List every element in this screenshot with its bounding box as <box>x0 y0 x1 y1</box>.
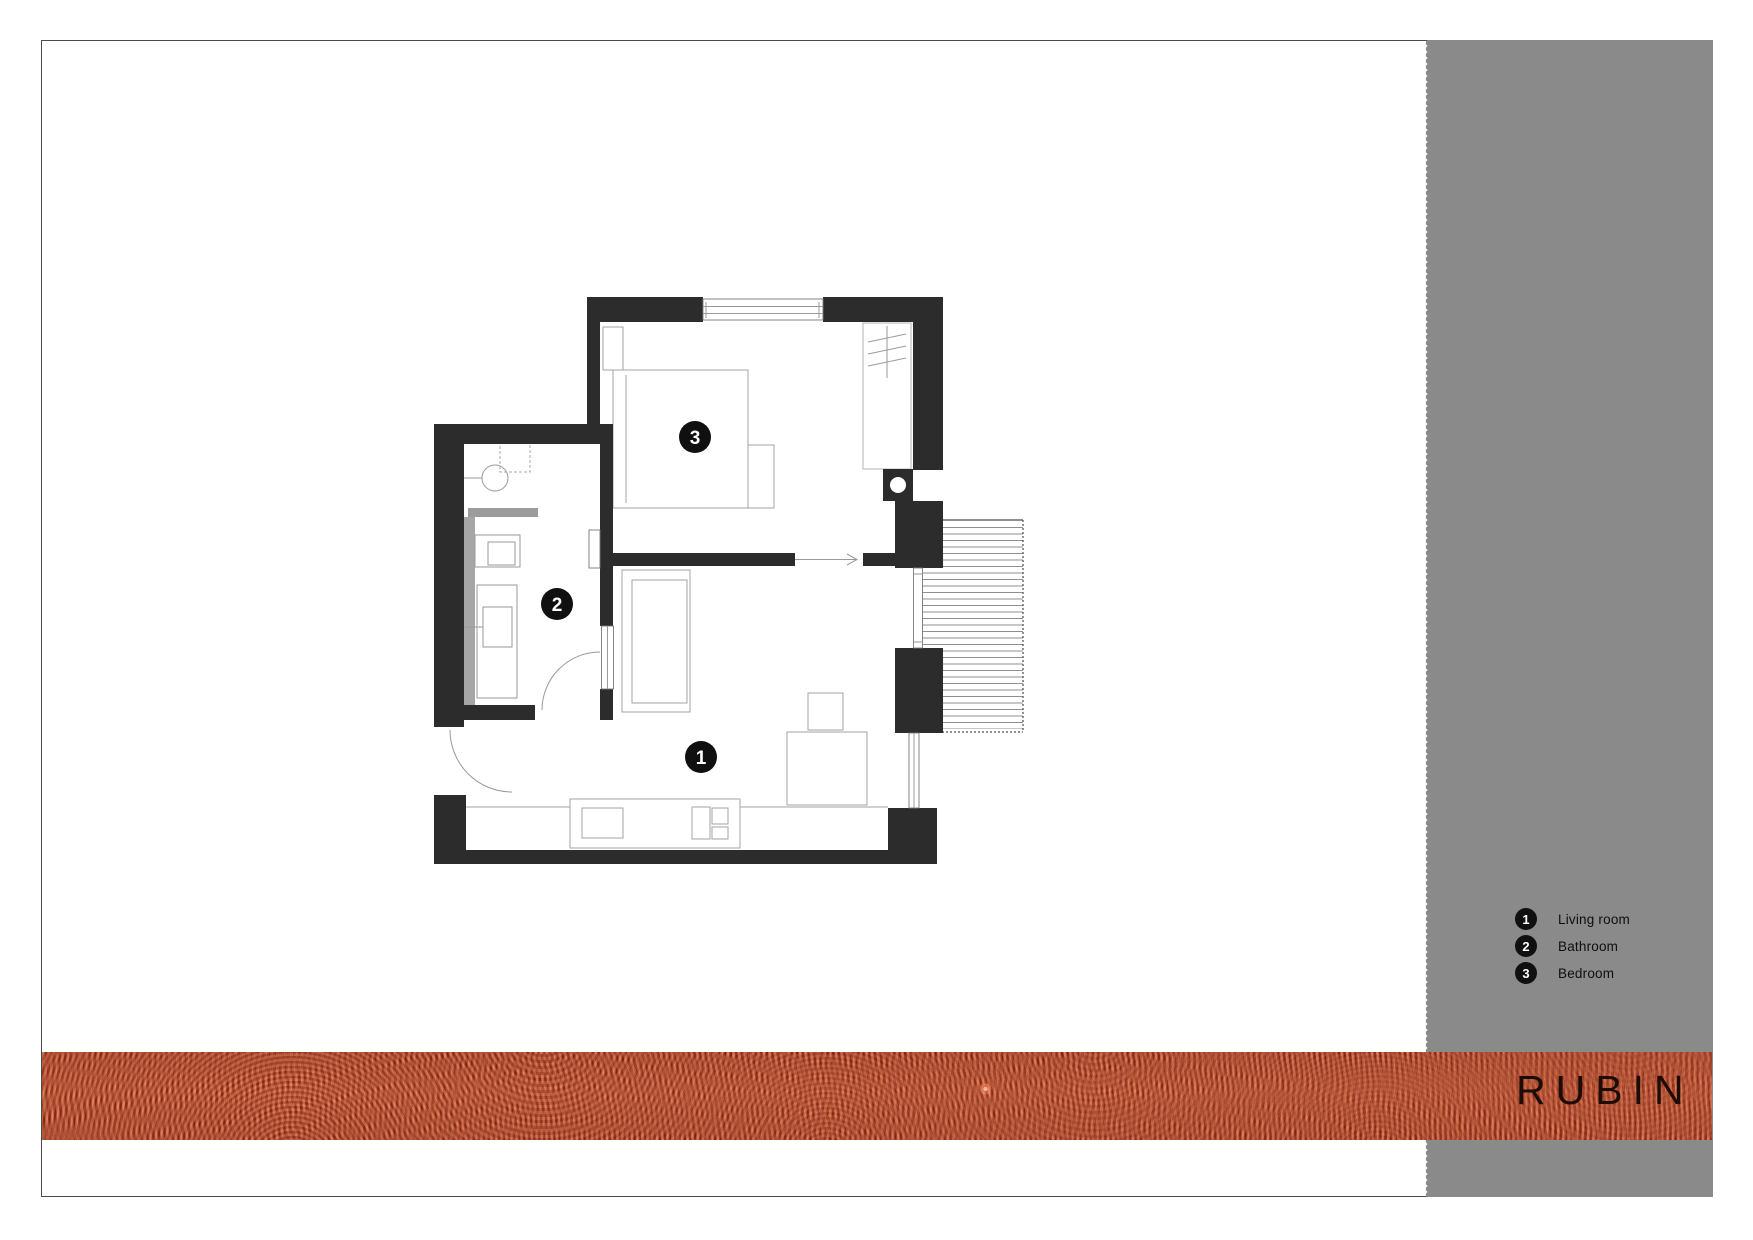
room-marker-bedroom: 3 <box>679 421 711 453</box>
living-room-window <box>909 733 919 808</box>
wardrobe <box>863 323 911 469</box>
bathroom-shelf <box>468 508 538 517</box>
legend-item-living-room: 1 Living room <box>1515 908 1630 930</box>
wall-niche <box>589 530 600 568</box>
legend: 1 Living room 2 Bathroom 3 Bedroom <box>1515 908 1630 989</box>
washbasin <box>482 465 508 491</box>
table <box>787 732 867 805</box>
legend-marker-1: 1 <box>1515 908 1537 930</box>
room-marker-living: 1 <box>685 741 717 773</box>
legend-item-bedroom: 3 Bedroom <box>1515 962 1630 984</box>
brand-band <box>42 1052 1712 1140</box>
bed-bench <box>748 445 774 508</box>
entrance-door-swing <box>450 730 512 792</box>
sofa <box>622 570 690 712</box>
room-marker-living-num: 1 <box>696 748 707 769</box>
sidebar-panel: 1 Living room 2 Bathroom 3 Bedroom <box>1429 40 1713 1197</box>
floor-plan: 1 2 3 <box>425 288 1037 872</box>
brand-logo: RUBIN <box>1516 1068 1694 1113</box>
room-marker-bedroom-num: 3 <box>690 428 701 449</box>
stove <box>692 807 728 839</box>
bathroom-plumbing-wall <box>464 517 475 705</box>
legend-label-bathroom: Bathroom <box>1558 939 1618 954</box>
bedroom-furniture <box>603 323 911 508</box>
room-marker-bathroom-num: 2 <box>552 595 563 616</box>
bedroom-window <box>703 299 823 320</box>
nightstand <box>603 327 623 370</box>
shaft <box>883 469 913 501</box>
legend-label-living-room: Living room <box>1558 912 1630 927</box>
presentation-sheet: 1 2 3 1 Living room 2 Bathroom 3 Bedroom <box>0 0 1753 1240</box>
bathroom-door-swing <box>542 652 600 710</box>
washing-machine <box>475 535 520 567</box>
water-heater <box>500 440 530 472</box>
kitchen-counter <box>466 799 888 848</box>
hall-door-cased <box>602 626 614 689</box>
legend-marker-2: 2 <box>1515 935 1537 957</box>
chair <box>808 693 843 730</box>
legend-marker-3: 3 <box>1515 962 1537 984</box>
bathroom-fixtures <box>464 440 538 705</box>
kitchen-sink <box>582 808 623 838</box>
balcony-door <box>914 568 923 648</box>
legend-item-bathroom: 2 Bathroom <box>1515 935 1630 957</box>
legend-label-bedroom: Bedroom <box>1558 966 1614 981</box>
room-marker-bathroom: 2 <box>541 588 573 620</box>
passage-mark <box>795 554 857 565</box>
